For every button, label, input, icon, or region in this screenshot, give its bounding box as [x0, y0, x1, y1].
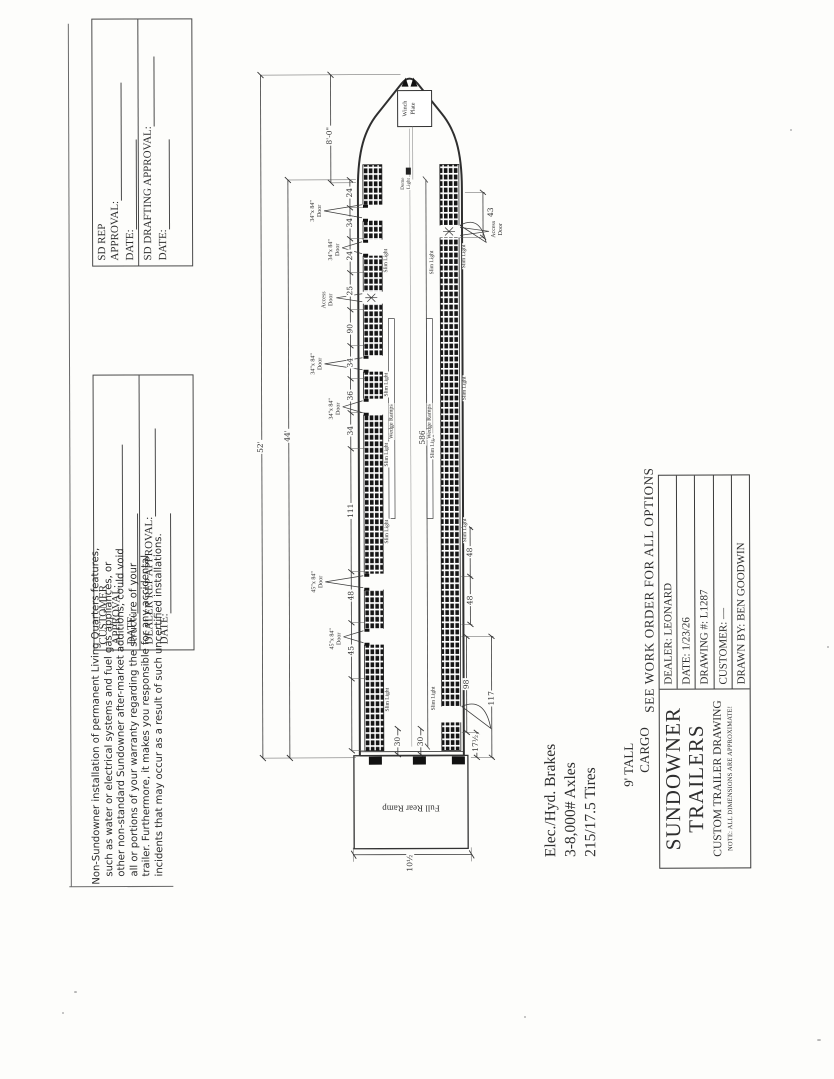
sd-drafting-date-line: [159, 139, 170, 229]
slim-light-label: Slim Light: [385, 372, 391, 398]
dim-48b: 48: [466, 595, 474, 607]
slim-light-label: Slim Light: [462, 244, 468, 270]
sd-rep-date-line: [126, 139, 137, 229]
dim-floor-length: 44': [284, 429, 292, 443]
rear-ramp-box: [354, 755, 468, 848]
disclaimer-line: all or portions of your warranty regardi…: [128, 533, 142, 884]
sd-rep-approval-row: SD REP APPROVAL: DATE:: [92, 20, 138, 266]
sd-drafting-date-label: DATE:: [157, 229, 169, 260]
dome-light-mark: [406, 168, 411, 175]
dim-48a: 48: [466, 547, 474, 559]
door-label-34x84-4: 34"x 84"Door: [329, 389, 342, 429]
dim-chain-90: 90: [346, 323, 354, 335]
dimensions-note: NOTE: ALL DIMENSIONS ARE APPROXIMATE!: [727, 689, 735, 867]
dim-chain-45: 45: [347, 645, 355, 657]
winch-plate-label-line1: Winch: [403, 100, 409, 118]
door-label-45x84-2: 45"x 84"Door: [329, 619, 342, 659]
scan-speck: [817, 1039, 821, 1041]
slim-light-label: Slim Light: [463, 518, 469, 544]
dim-chain-36: 36: [347, 390, 355, 402]
dim-chain-48: 48: [347, 590, 355, 602]
disclaimer-line: incidents that may occur as a result of …: [153, 533, 167, 884]
warranty-disclaimer: Non-Sundowner installation of permanent …: [90, 533, 167, 884]
scan-speck: [524, 1016, 526, 1018]
dim-chain-34a: 34: [346, 217, 354, 229]
field-drawn-by: DRAWN BY: BEN GOODWIN: [732, 475, 750, 688]
slim-light-label: Slim Light: [463, 376, 469, 402]
drawing-sheet: SD REP APPROVAL: DATE: SD DRAFTING APPRO…: [0, 0, 834, 1078]
sd-rep-label: SD REP: [96, 224, 108, 261]
sd-rep-date-label: DATE:: [124, 229, 136, 260]
sd-drafting-label: SD DRAFTING: [142, 188, 154, 260]
sd-approval-block: SD REP APPROVAL: DATE: SD DRAFTING APPRO…: [91, 18, 193, 266]
door-label-34x84-2: 34"x 84"Door: [328, 230, 341, 270]
dim-gooseneck: 8'-0": [326, 126, 334, 146]
door-label-45x84-1: 45"x 84"Door: [311, 562, 324, 602]
dome-light-label-line2: Light: [407, 177, 412, 190]
size-note-line1: 9' TALL: [621, 727, 637, 787]
door-label-34x84-3: 34"x 84"Door: [310, 344, 323, 384]
spec-brakes: Elec./Hyd. Brakes: [541, 744, 561, 857]
slim-light-label: Slim Light: [385, 442, 391, 468]
slim-light-label: Slim Light: [384, 248, 390, 274]
right-wall-track: [440, 164, 461, 750]
scan-speck: [790, 129, 792, 131]
disclaimer-line: other non-standard Sundowner after-marke…: [115, 533, 129, 884]
title-block-fields: DEALER: LEONARD DATE: 1/23/26 DRAWING #:…: [659, 475, 750, 688]
ramp-hinges: [369, 756, 465, 764]
slim-light-label: Slim Light: [432, 686, 438, 712]
door-leaders: [324, 204, 491, 643]
dim-chain-24b: 24: [346, 250, 354, 262]
spec-axles: 3-8,000# Axles: [561, 744, 581, 857]
sd-drafting-approval-row: SD DRAFTING APPROVAL: DATE:: [137, 19, 180, 265]
slim-light-label: Slim Light: [386, 687, 392, 713]
dim-chain-24a: 24: [346, 187, 354, 199]
sd-rep-approval-label: APPROVAL:: [109, 201, 121, 261]
dim-chain-25: 25: [346, 285, 354, 297]
size-note-line2: CARGO: [637, 727, 653, 787]
dim-17half: 17½: [472, 734, 480, 753]
dim-30b: 30: [417, 736, 425, 748]
dim-chain-111: 111: [347, 503, 355, 519]
disclaimer-line: trailer. Furthermore, it makes you respo…: [140, 533, 154, 884]
door-label-access-1: AccessDoor: [321, 280, 334, 320]
slim-light-label: Slim Light: [430, 250, 436, 276]
dim-98: 98: [463, 679, 471, 691]
dome-light-label-line1: Dome: [401, 176, 406, 190]
sd-drafting-approval-line: [143, 56, 154, 126]
dim-117: 117: [488, 690, 496, 706]
disclaimer-line: such as water or electrical systems and …: [103, 533, 117, 884]
company-name-line2: TRAILERS: [685, 690, 709, 868]
dim-chain-34c: 34: [347, 425, 355, 437]
wedge-ramps-label: Wedge Ramps: [389, 403, 395, 440]
company-name-line1: SUNDOWNER: [662, 690, 686, 868]
title-block-company: SUNDOWNER TRAILERS CUSTOM TRAILER DRAWIN…: [660, 688, 751, 867]
sd-drafting-approval-label: APPROVAL:: [142, 126, 154, 186]
door-swings: [460, 222, 491, 728]
slim-light-label: Slim Light: [385, 519, 391, 545]
dim-rear-ramp: 10½: [406, 854, 414, 873]
field-drawing-number: DRAWING #: L1287: [695, 476, 714, 689]
door-label-access-2: AccessDoor: [491, 209, 504, 249]
spec-notes: Elec./Hyd. Brakes 3-8,000# Axles 215/17.…: [541, 744, 601, 857]
scan-speck: [827, 646, 829, 648]
scanned-trailer-drawing-page: { "approval_blocks": { "sd_rep": {"name"…: [0, 0, 834, 1079]
sd-rep-approval-line: [111, 83, 122, 201]
door-label-34x84-1: 34"x 84"Door: [310, 191, 323, 231]
wedge-ramps-label: Wedge Ramps: [427, 403, 433, 440]
title-block: SUNDOWNER TRAILERS CUSTOM TRAILER DRAWIN…: [658, 474, 751, 868]
winch-plate-label-line2: Plate: [411, 102, 417, 116]
spec-tires: 215/17.5 Tires: [581, 744, 601, 857]
scan-speck: [74, 991, 77, 993]
dim-chain-34b: 34: [346, 357, 354, 369]
field-customer: CUSTOMER: —: [714, 475, 733, 688]
dealer-rep-approval-line: [145, 429, 156, 517]
drawing-type: CUSTOM TRAILER DRAWING: [712, 689, 725, 867]
dim-overall-length: 52': [257, 440, 265, 454]
field-dealer: DEALER: LEONARD: [659, 476, 678, 689]
full-rear-ramp-label: Full Rear Ramp: [382, 803, 440, 813]
work-order-banner: SEE WORK ORDER FOR ALL OPTIONS: [641, 468, 658, 713]
field-date: DATE: 1/23/26: [677, 476, 696, 689]
size-note: 9' TALL CARGO: [621, 727, 653, 787]
scan-speck: [62, 1012, 64, 1014]
dim-interior-length: 586: [419, 429, 427, 445]
dim-30a: 30: [394, 736, 402, 748]
disclaimer-line: Non-Sundowner installation of permanent …: [90, 534, 104, 885]
